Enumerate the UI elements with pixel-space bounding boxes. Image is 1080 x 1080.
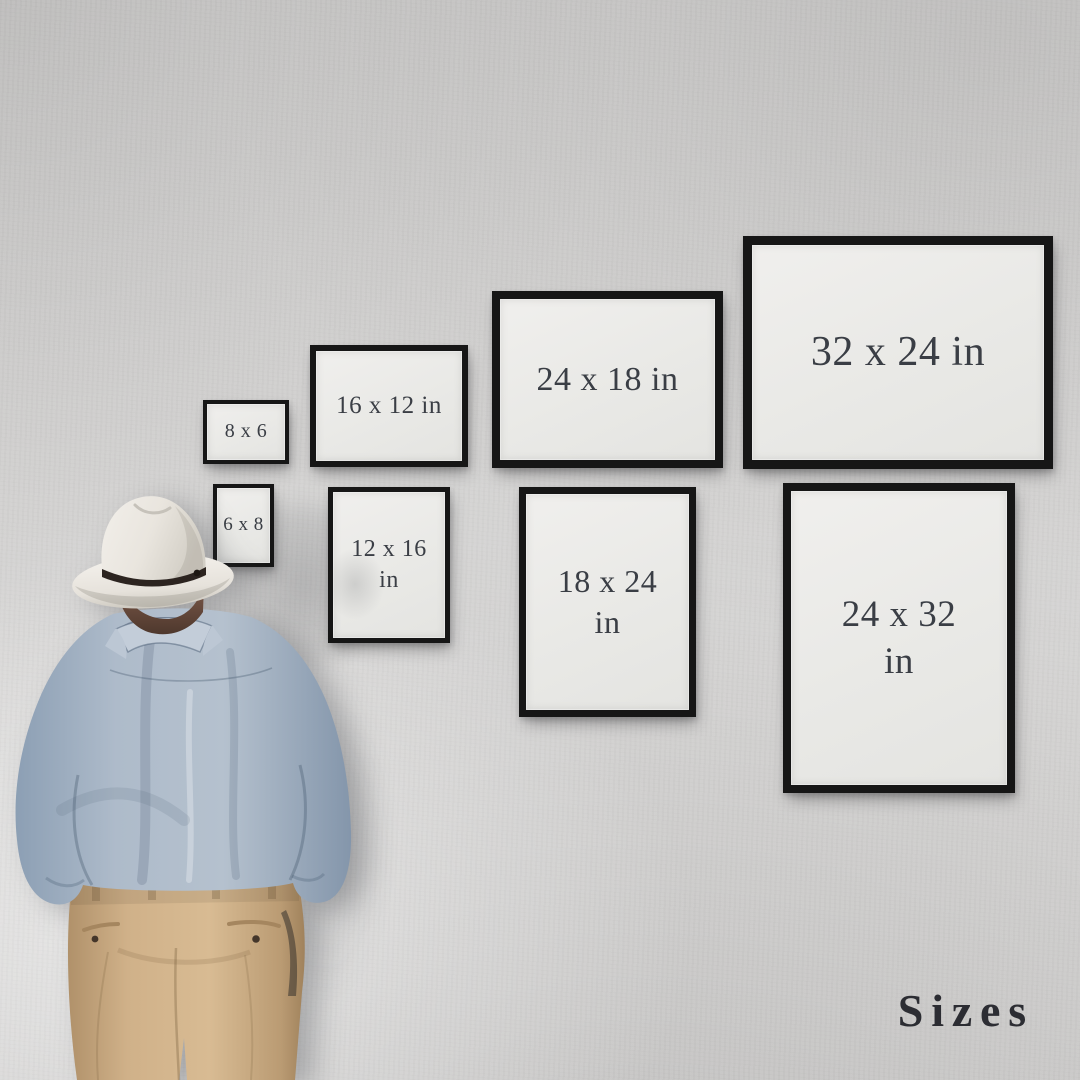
hat-band-knot xyxy=(194,570,201,577)
frame-8x6: 8 x 6 xyxy=(203,400,289,464)
frame-size-label: 8 x 6 xyxy=(225,419,268,445)
frame-16x12: 16 x 12 in xyxy=(310,345,468,467)
man-figure xyxy=(0,480,380,1080)
frame-size-label: 32 x 24 in xyxy=(811,326,985,380)
straw-hat xyxy=(70,496,235,613)
frame-18x24: 18 x 24in xyxy=(519,487,696,717)
frame-size-label: 16 x 12 in xyxy=(336,390,442,422)
trousers xyxy=(68,874,305,1080)
frame-mat: 24 x 32in xyxy=(791,491,1007,785)
shirt xyxy=(16,608,352,904)
frame-mat: 18 x 24in xyxy=(526,494,689,710)
frame-mat: 32 x 24 in xyxy=(752,245,1044,460)
pocket-button xyxy=(252,935,260,943)
frame-size-label: 24 x 32in xyxy=(842,591,957,686)
frame-mat: 16 x 12 in xyxy=(316,351,462,461)
size-guide-scene: 8 x 616 x 12 in24 x 18 in32 x 24 in6 x 8… xyxy=(0,0,1080,1080)
frame-32x24: 32 x 24 in xyxy=(743,236,1053,469)
frame-size-label: 18 x 24in xyxy=(558,561,658,643)
pocket-button xyxy=(92,936,99,943)
frame-24x32: 24 x 32in xyxy=(783,483,1015,793)
frame-mat: 8 x 6 xyxy=(207,404,285,460)
frame-24x18: 24 x 18 in xyxy=(492,291,723,468)
frame-mat: 24 x 18 in xyxy=(500,299,715,460)
sizes-title: Sizes xyxy=(898,984,1034,1037)
frame-size-label: 24 x 18 in xyxy=(537,358,679,402)
